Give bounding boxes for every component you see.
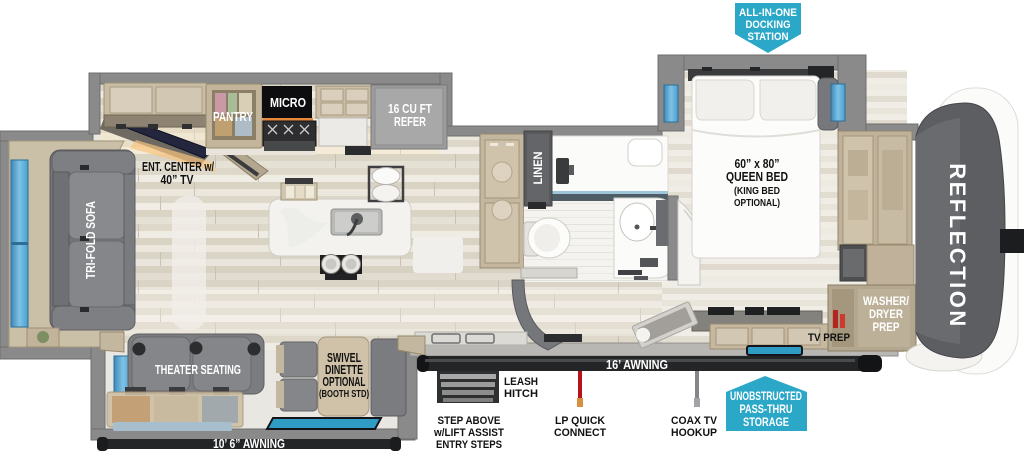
svg-text:COAX TV: COAX TV [671,415,718,427]
svg-text:REFLECTION: REFLECTION [945,163,970,329]
svg-text:DOCKING: DOCKING [746,19,791,31]
svg-text:TV PREP: TV PREP [808,332,850,344]
svg-text:LEASH: LEASH [504,376,538,388]
svg-text:LP QUICK: LP QUICK [555,415,605,427]
svg-text:PASS-THRU: PASS-THRU [740,404,793,416]
svg-text:WASHER/: WASHER/ [863,296,910,308]
svg-text:DRYER: DRYER [869,309,904,321]
svg-text:10’ 6” AWNING: 10’ 6” AWNING [213,437,285,451]
svg-text:(BOOTH STD): (BOOTH STD) [319,388,369,400]
svg-text:MICRO: MICRO [270,95,306,110]
svg-text:THEATER SEATING: THEATER SEATING [155,363,241,377]
svg-text:PANTRY: PANTRY [213,109,253,124]
svg-text:40” TV: 40” TV [161,173,195,187]
svg-text:LINEN: LINEN [533,152,545,185]
svg-text:QUEEN BED: QUEEN BED [726,170,788,184]
svg-text:OPTIONAL: OPTIONAL [323,375,366,389]
svg-text:UNOBSTRUCTED: UNOBSTRUCTED [730,391,802,403]
svg-text:REFER: REFER [394,115,426,129]
svg-text:60” x 80”: 60” x 80” [735,157,780,171]
svg-text:ENTRY STEPS: ENTRY STEPS [436,439,502,451]
svg-text:HOOKUP: HOOKUP [671,427,717,439]
svg-text:ALL-IN-ONE: ALL-IN-ONE [739,7,797,19]
svg-text:HITCH: HITCH [504,388,538,400]
svg-text:ENT. CENTER w/: ENT. CENTER w/ [142,160,214,174]
svg-text:CONNECT: CONNECT [554,427,606,439]
svg-text:16 CU FT: 16 CU FT [388,102,432,116]
svg-text:STEP ABOVE: STEP ABOVE [438,415,501,427]
svg-text:OPTIONAL): OPTIONAL) [734,197,780,209]
svg-text:(KING BED: (KING BED [734,185,780,197]
svg-text:STATION: STATION [748,31,789,43]
svg-text:STORAGE: STORAGE [743,417,789,429]
svg-text:TRI-FOLD SOFA: TRI-FOLD SOFA [84,201,98,279]
svg-text:PREP: PREP [873,322,900,334]
svg-text:16’ AWNING: 16’ AWNING [606,358,668,372]
svg-text:w/LIFT ASSIST: w/LIFT ASSIST [433,427,504,439]
